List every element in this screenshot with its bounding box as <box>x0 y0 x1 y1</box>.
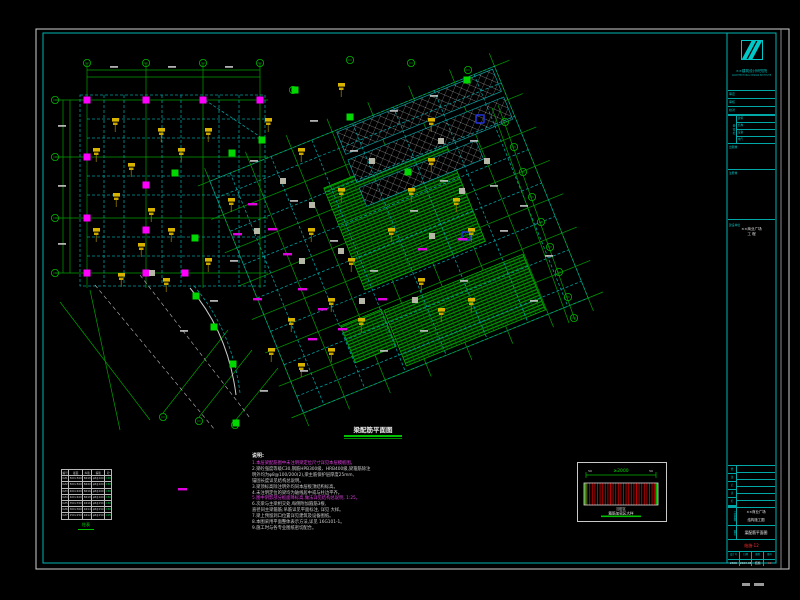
detail-dim-label: ≥2000 <box>613 468 628 474</box>
beam-lines <box>80 95 265 286</box>
approvals-table: 审定审核校对 <box>728 91 775 116</box>
table-cell: φ8@150 <box>92 513 105 519</box>
footer-cell: 图号12 <box>764 552 775 566</box>
sign-row: 建筑 <box>737 116 775 123</box>
plan-orthogonal-section <box>55 63 278 430</box>
svg-text:50: 50 <box>649 469 653 473</box>
plan-title-text: 梁配筋平面图 <box>330 424 416 434</box>
notes-title: 说明: <box>252 452 408 459</box>
print-stamp-mark <box>742 583 750 586</box>
sign-table: 会签栏 建筑结构设备电气 <box>728 116 775 144</box>
stamp-box-a: 出图章 <box>728 144 775 170</box>
logo-icon <box>741 40 763 60</box>
footer-cell: 日期2023.08 <box>740 552 753 566</box>
title-block: ××建筑设计研究院 ARCHITECTURAL DESIGN INSTITUTE… <box>728 33 775 563</box>
sign-row: 结构 <box>737 123 775 130</box>
note-line: 9.施工时与各专业图纸密切配合。 <box>252 526 408 532</box>
svg-text:50: 50 <box>588 469 592 473</box>
company-logo <box>728 33 775 67</box>
drawing-title-cell: 图名 梁配筋平面图 <box>728 526 775 540</box>
drawing-number-stamp: 结施-12 <box>728 540 775 552</box>
table-cell: 4Φ12 <box>83 513 92 519</box>
table-cell: 250×250 <box>69 513 83 519</box>
column-schedule-caption: 柱表 <box>61 522 111 530</box>
stirrup-detail-drawing: ≥2000 50 50 加密区 箍筋加密区大样 <box>578 463 664 519</box>
plan-title-underline <box>344 435 402 437</box>
svg-text:箍筋加密区大样: 箍筋加密区大样 <box>608 511 634 516</box>
sign-row: 设备 <box>737 130 775 137</box>
sign-row: 电气 <box>737 137 775 143</box>
svg-text:加密区: 加密区 <box>616 506 626 511</box>
table-row: KZ7250×2504Φ12φ8@150C25 <box>62 513 112 519</box>
title-block-footer-grid: 设计号2308日期2023.08图别结施图号12 <box>728 552 775 566</box>
column-schedule: 编号截面纵筋箍筋砼KZ1500×5008Φ18φ8@100C30KZ2500×5… <box>61 469 111 530</box>
company-name: ××建筑设计研究院 ARCHITECTURAL DESIGN INSTITUTE <box>728 67 775 91</box>
column-schedule-table: 编号截面纵筋箍筋砼KZ1500×5008Φ18φ8@100C30KZ2500×5… <box>61 469 112 520</box>
caption-underline <box>78 529 94 530</box>
plan-title-underline-thin <box>344 438 402 439</box>
table-cell: C25 <box>105 513 112 519</box>
project-name-cell: 工程名称 ××商业广场 结构施工图 <box>728 508 775 526</box>
stirrup-detail-box: ≥2000 50 50 加密区 箍筋加密区大样 <box>577 462 667 522</box>
footer-cell: 图别结施 <box>752 552 764 566</box>
plan-title: 梁配筋平面图 <box>330 424 416 439</box>
approval-row: 校对 <box>728 107 775 115</box>
cad-sheet: 梁配筋平面图 说明: 1.本层梁配筋图中未注明梁定位尺寸详见本层模板图。2.梁砼… <box>0 0 800 600</box>
footer-cell: 设计号2308 <box>728 552 740 566</box>
table-cell: KZ7 <box>62 513 69 519</box>
notes-lines: 1.本层梁配筋图中未注明梁定位尺寸详见本层模板图。2.梁砼强度等级C30,钢筋H… <box>252 461 408 532</box>
project-box: 建设单位 ××商业广场 工 程 <box>728 220 775 466</box>
stamp-box-b: 注册章 <box>728 170 775 220</box>
approval-row: 审定 <box>728 91 775 99</box>
general-notes: 说明: 1.本层梁配筋图中未注明梁定位尺寸详见本层模板图。2.梁砼强度等级C30… <box>252 452 408 532</box>
print-stamp-mark <box>754 583 764 586</box>
revision-rows: 修改记录栏 <box>728 466 775 508</box>
approval-row: 审核 <box>728 99 775 107</box>
column-markers-magenta <box>84 97 264 277</box>
